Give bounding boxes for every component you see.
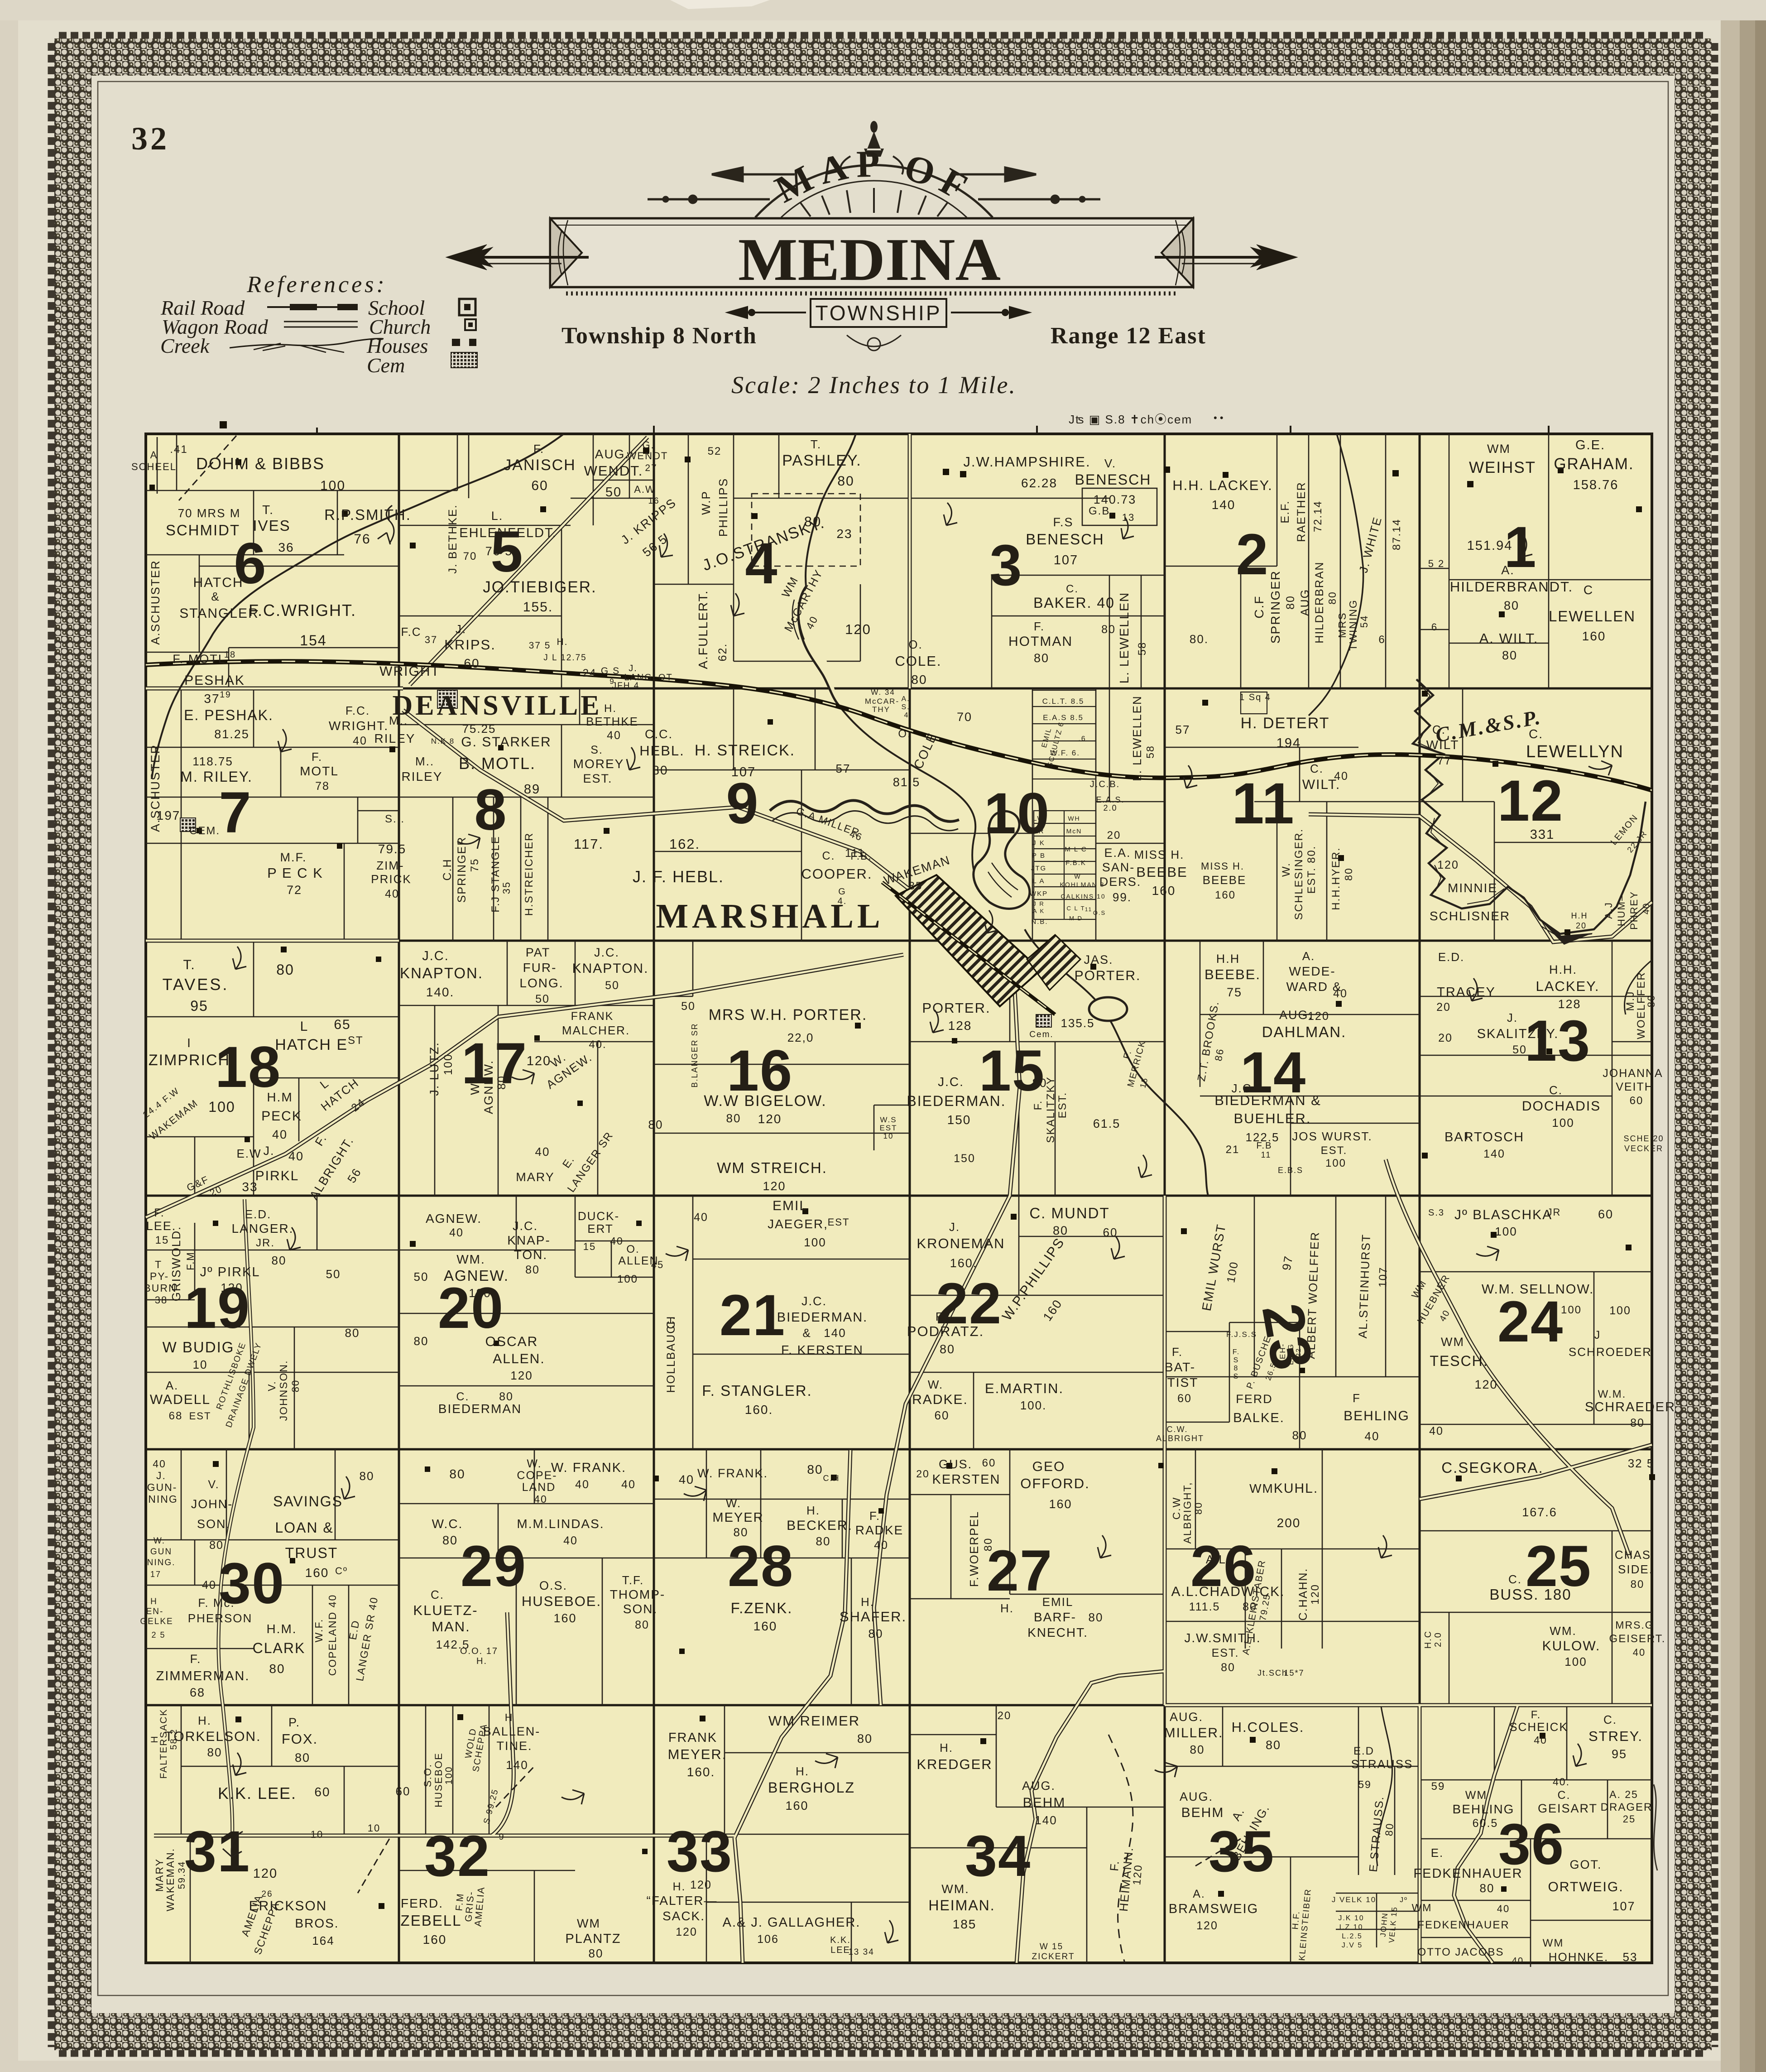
svg-text:J L 12.75: J L 12.75 <box>543 653 586 663</box>
svg-text:40: 40 <box>1497 1903 1510 1914</box>
svg-text:DEANSVILLE: DEANSVILLE <box>392 690 602 721</box>
svg-text:PECK: PECK <box>261 1109 302 1124</box>
svg-text:SCHLESINGER.: SCHLESINGER. <box>1293 828 1305 920</box>
svg-text:F.: F. <box>1107 1860 1122 1872</box>
svg-text:H.: H. <box>1000 1601 1014 1615</box>
svg-text:WKP: WKP <box>1030 890 1048 898</box>
svg-text:L: L <box>300 1019 309 1034</box>
svg-text:20: 20 <box>1436 1001 1451 1014</box>
svg-text:E.F.: E.F. <box>1279 500 1291 523</box>
svg-text:S: S <box>1233 1373 1239 1380</box>
svg-text:F.ZENK.: F.ZENK. <box>731 1600 793 1616</box>
svg-text:H.H.: H.H. <box>1549 963 1577 976</box>
svg-text:FALTERSACK: FALTERSACK <box>158 1709 169 1779</box>
svg-text:HOTMAN: HOTMAN <box>1008 634 1073 649</box>
svg-text:5 2: 5 2 <box>1428 558 1445 569</box>
svg-text:S.: S. <box>590 744 603 756</box>
svg-text:10: 10 <box>368 1822 380 1834</box>
svg-text:50: 50 <box>605 485 622 500</box>
svg-text:120: 120 <box>1131 1864 1145 1885</box>
svg-text:120: 120 <box>1474 1378 1497 1391</box>
svg-text:80: 80 <box>1326 591 1338 605</box>
svg-text:80: 80 <box>1630 1417 1645 1429</box>
svg-text:AGNEW.: AGNEW. <box>426 1211 482 1226</box>
svg-text:TWINING: TWINING <box>1347 599 1359 651</box>
svg-text:KNAPTON.: KNAPTON. <box>400 965 483 981</box>
svg-text:C: C <box>1584 583 1593 597</box>
svg-text:40: 40 <box>385 888 399 900</box>
svg-text:BEHM: BEHM <box>1181 1805 1224 1820</box>
svg-text:J.K 10: J.K 10 <box>1338 1914 1364 1922</box>
svg-text:C.W: C.W <box>1171 1497 1182 1520</box>
svg-text:40: 40 <box>1534 1734 1547 1746</box>
svg-text:4: 4 <box>745 531 778 596</box>
svg-text:FRANK: FRANK <box>668 1731 717 1745</box>
svg-text:36: 36 <box>278 540 294 554</box>
svg-text:STRAUSS: STRAUSS <box>1351 1757 1413 1771</box>
svg-text:J VELK 10: J VELK 10 <box>1332 1895 1376 1904</box>
svg-text:WENDT.: WENDT. <box>584 463 643 479</box>
svg-text:E.D: E.D <box>1353 1745 1374 1757</box>
svg-text:197: 197 <box>157 808 181 822</box>
svg-text:E.A.: E.A. <box>1104 846 1131 860</box>
svg-text:58.2: 58.2 <box>169 1729 179 1750</box>
svg-text:80: 80 <box>1631 1578 1645 1591</box>
svg-text:75: 75 <box>1227 986 1242 999</box>
svg-text:C.SEGKORA.: C.SEGKORA. <box>1441 1459 1543 1476</box>
svg-text:36: 36 <box>1498 1812 1564 1877</box>
svg-text:PHREY: PHREY <box>1628 891 1640 930</box>
svg-text:6: 6 <box>234 531 267 596</box>
svg-text:J.V 5: J.V 5 <box>1342 1942 1363 1949</box>
svg-text:120: 120 <box>676 1926 697 1938</box>
svg-text:25: 25 <box>1526 1534 1592 1599</box>
svg-text:W.C.: W.C. <box>432 1517 463 1531</box>
svg-text:17: 17 <box>150 1570 161 1579</box>
svg-text:EST.: EST. <box>1212 1647 1239 1659</box>
svg-text:160: 160 <box>423 1933 447 1947</box>
svg-text:G.B.: G.B. <box>1089 505 1114 517</box>
svg-text:COOPER.: COOPER. <box>801 866 873 882</box>
svg-text:100: 100 <box>1561 1304 1582 1316</box>
svg-text:H.STREICHER: H.STREICHER <box>523 832 535 916</box>
svg-text:18: 18 <box>215 1035 281 1100</box>
svg-text:10: 10 <box>311 1829 323 1840</box>
svg-text:38: 38 <box>155 1294 168 1306</box>
svg-text:FOX.: FOX. <box>282 1731 318 1747</box>
svg-text:T.F.: T.F. <box>622 1573 644 1587</box>
svg-text:L.2.5: L.2.5 <box>1342 1933 1363 1940</box>
svg-text:HILDERBRAN: HILDERBRAN <box>1313 561 1326 643</box>
svg-text:S.I.: S.I. <box>385 813 405 825</box>
svg-text:WM: WM <box>1441 1335 1464 1349</box>
svg-text:BALKE.: BALKE. <box>1233 1411 1285 1425</box>
svg-text:40: 40 <box>202 1579 216 1591</box>
svg-text:H.: H. <box>806 1504 820 1517</box>
svg-text:RILEY: RILEY <box>374 731 416 745</box>
svg-text:32 5: 32 5 <box>1628 1457 1655 1470</box>
svg-text:60: 60 <box>1177 1392 1192 1405</box>
svg-text:80: 80 <box>1343 867 1354 881</box>
svg-text:T.: T. <box>262 503 274 517</box>
svg-text:Jº: Jº <box>1400 1896 1408 1904</box>
svg-text:80: 80 <box>1292 1428 1307 1442</box>
svg-text:P B: P B <box>1032 852 1046 860</box>
svg-text:80: 80 <box>807 1462 823 1476</box>
svg-text:BALLEN-: BALLEN- <box>483 1725 541 1738</box>
svg-text:60: 60 <box>1598 1207 1613 1221</box>
svg-text:A.W: A.W <box>634 484 656 495</box>
svg-text:19: 19 <box>184 1276 250 1341</box>
svg-text:C.: C. <box>1066 583 1079 595</box>
svg-text:RADKE: RADKE <box>855 1523 903 1537</box>
svg-text:72.14: 72.14 <box>1312 500 1324 532</box>
svg-text:WENDT: WENDT <box>627 450 668 462</box>
svg-text:KRIPS.: KRIPS. <box>444 637 496 653</box>
svg-text:FRANK: FRANK <box>571 1010 614 1023</box>
svg-text:DOHM & BIBBS: DOHM & BIBBS <box>196 454 325 473</box>
svg-text:17: 17 <box>461 1031 528 1096</box>
svg-text:MISS H.: MISS H. <box>1134 848 1185 861</box>
svg-text:VECKER: VECKER <box>1624 1144 1663 1153</box>
svg-text:80: 80 <box>499 1390 513 1403</box>
svg-text:100: 100 <box>804 1236 826 1249</box>
svg-text:JOHNSON.: JOHNSON. <box>278 1360 289 1421</box>
svg-text:160: 160 <box>1049 1497 1072 1511</box>
svg-text:13: 13 <box>1525 1009 1591 1073</box>
svg-text:References:: References: <box>246 272 387 298</box>
svg-text:26: 26 <box>261 1889 273 1899</box>
svg-text:Jº BLASCHKA: Jº BLASCHKA <box>1454 1207 1552 1222</box>
svg-text:TRACEY: TRACEY <box>1437 985 1496 1000</box>
svg-text:20: 20 <box>916 1468 930 1480</box>
svg-text:100: 100 <box>1325 1157 1346 1169</box>
svg-text:ZICKERT: ZICKERT <box>1032 1952 1075 1961</box>
svg-text:40: 40 <box>607 729 621 742</box>
svg-text:KRONEMAN: KRONEMAN <box>917 1236 1005 1251</box>
svg-text:H: H <box>505 1711 513 1723</box>
svg-text:K.K.: K.K. <box>830 1935 851 1945</box>
svg-text:80: 80 <box>648 1118 663 1131</box>
svg-text:SHAFER.: SHAFER. <box>840 1609 907 1625</box>
svg-text:NING.: NING. <box>147 1558 176 1567</box>
svg-text:HEIMAN.: HEIMAN. <box>928 1897 995 1913</box>
svg-text:SACK.: SACK. <box>662 1909 705 1923</box>
svg-text:1 Sq 4: 1 Sq 4 <box>1239 692 1271 702</box>
svg-text:C.: C. <box>456 1390 470 1403</box>
svg-text:F.B: F.B <box>1257 1141 1272 1151</box>
svg-text:27: 27 <box>987 1538 1053 1603</box>
svg-text:76: 76 <box>354 532 370 547</box>
svg-text:C.L.T. 8.5: C.L.T. 8.5 <box>1042 697 1085 706</box>
svg-text:40: 40 <box>1633 1647 1646 1658</box>
svg-text:154: 154 <box>300 632 326 649</box>
svg-text:100: 100 <box>617 1273 638 1285</box>
svg-text:HUM–: HUM– <box>1616 894 1627 926</box>
svg-text:80: 80 <box>857 1732 873 1745</box>
svg-text:40: 40 <box>874 1539 888 1552</box>
svg-text:40: 40 <box>1365 1429 1380 1443</box>
svg-text:24: 24 <box>1497 1289 1564 1354</box>
svg-text:8: 8 <box>1234 1365 1239 1372</box>
svg-text:7: 7 <box>219 780 252 845</box>
svg-text:CALKINS 10: CALKINS 10 <box>1061 893 1105 900</box>
svg-text:118.75: 118.75 <box>192 755 233 768</box>
svg-text:80: 80 <box>209 1539 224 1552</box>
svg-text:2.0: 2.0 <box>1103 803 1117 812</box>
svg-text:J.: J. <box>156 1470 166 1481</box>
svg-text:58: 58 <box>1144 745 1156 759</box>
svg-text:HEBL.: HEBL. <box>639 743 685 759</box>
svg-text:EN-: EN- <box>146 1607 164 1616</box>
svg-text:E. PESHAK.: E. PESHAK. <box>184 707 274 723</box>
svg-text:32: 32 <box>424 1824 490 1889</box>
svg-text:100: 100 <box>1609 1304 1631 1317</box>
svg-text:80.: 80. <box>1190 632 1209 646</box>
svg-text:50: 50 <box>681 1000 696 1013</box>
svg-text:80: 80 <box>1089 1610 1104 1624</box>
svg-text:WM.: WM. <box>1550 1624 1576 1638</box>
svg-text:F: F <box>1353 1391 1361 1405</box>
svg-text:77: 77 <box>1437 755 1452 767</box>
svg-text:L A: L A <box>1032 877 1045 885</box>
svg-text:13 34: 13 34 <box>848 1947 874 1957</box>
svg-text:SCHLISNER: SCHLISNER <box>1430 909 1510 923</box>
svg-text:W.: W. <box>527 1457 542 1470</box>
svg-text:160: 160 <box>305 1566 329 1580</box>
svg-text:107: 107 <box>1377 1266 1390 1288</box>
svg-text:58: 58 <box>1136 642 1148 656</box>
svg-text:WM: WM <box>1249 1481 1274 1495</box>
svg-text:J.: J. <box>263 1144 274 1158</box>
svg-text:59: 59 <box>1431 1780 1445 1793</box>
svg-text:E.D.: E.D. <box>1438 950 1465 964</box>
svg-text:WM: WM <box>1487 442 1511 456</box>
svg-text:120: 120 <box>527 1054 551 1068</box>
svg-text:ZIMMERMAN.: ZIMMERMAN. <box>156 1669 250 1683</box>
svg-text:SCHEICK: SCHEICK <box>1509 1720 1568 1734</box>
svg-text:MRS: MRS <box>1336 612 1348 638</box>
svg-text:162.: 162. <box>669 836 700 852</box>
svg-text:140.: 140. <box>426 985 455 999</box>
svg-text:BERGHOLZ: BERGHOLZ <box>768 1779 855 1796</box>
svg-text:BEHLING: BEHLING <box>1344 1409 1410 1423</box>
svg-text:F.J.S.S: F.J.S.S <box>1226 1330 1257 1339</box>
svg-text:WM REIMER: WM REIMER <box>768 1713 860 1729</box>
svg-text:DUCK-: DUCK- <box>578 1209 619 1223</box>
svg-text:1: 1 <box>1504 515 1537 580</box>
svg-text:ORTWEIG.: ORTWEIG. <box>1548 1880 1623 1894</box>
svg-text:MEYER.: MEYER. <box>668 1746 727 1762</box>
svg-text:BUEHLER.: BUEHLER. <box>1233 1111 1311 1126</box>
svg-text:107: 107 <box>1054 553 1078 567</box>
svg-text:BARF-: BARF- <box>1034 1610 1076 1624</box>
svg-text:J.C.: J.C. <box>801 1294 827 1308</box>
svg-text:JOHANNA: JOHANNA <box>1603 1067 1663 1080</box>
svg-text:WM: WM <box>1465 1789 1487 1802</box>
svg-text:McN: McN <box>1066 827 1082 835</box>
svg-text:40.: 40. <box>589 1038 606 1051</box>
svg-text:61.5: 61.5 <box>1093 1117 1121 1130</box>
svg-text:SCHRAEDER: SCHRAEDER <box>1585 1400 1675 1414</box>
svg-text:R.P.SMITH.: R.P.SMITH. <box>324 506 411 523</box>
svg-text:50: 50 <box>605 979 619 992</box>
svg-text:35: 35 <box>501 881 512 894</box>
svg-text:J R: J R <box>1033 900 1045 907</box>
svg-text:24: 24 <box>583 667 597 679</box>
svg-text:53: 53 <box>1623 1950 1638 1964</box>
svg-text:KNECHT.: KNECHT. <box>1027 1625 1088 1639</box>
svg-text:79.5: 79.5 <box>378 842 407 856</box>
svg-text:MALCHER.: MALCHER. <box>562 1024 630 1037</box>
svg-text:81.25: 81.25 <box>214 727 250 741</box>
svg-text:H.H: H.H <box>1216 952 1240 966</box>
svg-text:C.: C. <box>1310 762 1324 775</box>
svg-text:MAN.: MAN. <box>432 1619 470 1635</box>
svg-text:80: 80 <box>360 1469 374 1483</box>
svg-text:40: 40 <box>679 1473 694 1486</box>
svg-text:M.J: M.J <box>1624 991 1636 1011</box>
svg-text:35: 35 <box>1209 1819 1275 1884</box>
svg-text:&: & <box>802 1326 811 1340</box>
svg-text:MRS.G: MRS.G <box>1615 1619 1654 1631</box>
svg-text:F.: F. <box>312 750 322 764</box>
svg-text:&: & <box>211 590 220 603</box>
svg-text:80: 80 <box>272 1254 287 1267</box>
svg-text:K.K. LEE.: K.K. LEE. <box>218 1784 297 1803</box>
svg-text:13: 13 <box>1122 512 1135 523</box>
svg-text:C.H: C.H <box>441 858 454 880</box>
svg-text:A.SCHUSTER: A.SCHUSTER <box>149 560 162 645</box>
svg-text:33: 33 <box>667 1819 733 1884</box>
svg-text:F.J STANGLE: F.J STANGLE <box>489 836 502 913</box>
svg-text:72: 72 <box>287 883 302 897</box>
svg-text:EST: EST <box>828 1216 850 1228</box>
svg-text:J.C.: J.C. <box>938 1075 964 1089</box>
svg-text:KULOW.: KULOW. <box>1542 1639 1601 1654</box>
svg-text:160.: 160. <box>745 1403 773 1417</box>
svg-text:MOREY: MOREY <box>573 757 624 771</box>
svg-text:Range 12 East: Range 12 East <box>1051 323 1206 349</box>
svg-text:15*7: 15*7 <box>1284 1668 1304 1678</box>
svg-text:35: 35 <box>909 880 923 892</box>
svg-text:WEIHST: WEIHST <box>1469 459 1536 476</box>
svg-text:60.5: 60.5 <box>1473 1817 1498 1830</box>
svg-text:BENESCH: BENESCH <box>1075 471 1152 488</box>
svg-text:50: 50 <box>535 993 550 1005</box>
svg-text:45: 45 <box>651 1259 664 1270</box>
svg-text:C L T: C L T <box>1066 905 1085 912</box>
svg-text:120: 120 <box>1308 1010 1329 1023</box>
svg-text:80: 80 <box>837 474 854 489</box>
svg-text:BEHM: BEHM <box>1023 1795 1066 1810</box>
svg-text:W.P: W.P <box>699 490 713 515</box>
svg-text:W. 34: W. 34 <box>871 688 895 697</box>
svg-text:2.0: 2.0 <box>1433 1632 1443 1647</box>
svg-text:BARTOSCH: BARTOSCH <box>1444 1130 1524 1144</box>
svg-text:J.W.HAMPSHIRE.: J.W.HAMPSHIRE. <box>963 454 1090 470</box>
svg-text:M L C: M L C <box>1065 846 1087 853</box>
svg-text:F.: F. <box>1531 1709 1541 1721</box>
svg-text:194: 194 <box>1277 736 1301 750</box>
svg-text:PASHLEY.: PASHLEY. <box>782 452 861 469</box>
svg-text:VEITH: VEITH <box>1616 1081 1654 1093</box>
svg-text:40: 40 <box>1429 1425 1444 1437</box>
svg-text:80: 80 <box>1101 623 1116 636</box>
svg-text:EST. 80.: EST. 80. <box>1305 846 1318 894</box>
svg-text:80: 80 <box>1193 1502 1204 1514</box>
svg-text:CLARK: CLARK <box>253 1640 306 1656</box>
svg-text:86: 86 <box>1213 1048 1226 1062</box>
svg-text:80: 80 <box>652 763 668 777</box>
svg-text:106: 106 <box>757 1933 779 1946</box>
svg-text:V.: V. <box>1104 457 1116 470</box>
svg-text:I.Z 10: I.Z 10 <box>1339 1923 1363 1931</box>
svg-text:LAND: LAND <box>522 1481 556 1494</box>
svg-text:BECKER.: BECKER. <box>787 1518 853 1533</box>
svg-text:87.14: 87.14 <box>1391 519 1403 550</box>
svg-text:H.H: H.H <box>1571 911 1588 920</box>
svg-text:O.O. 17: O.O. 17 <box>460 1646 498 1656</box>
svg-text:SCHROEDER: SCHROEDER <box>1569 1345 1652 1359</box>
svg-text:P.: P. <box>288 1716 300 1729</box>
svg-text:F.C.WRIGHT.: F.C.WRIGHT. <box>249 601 356 620</box>
svg-text:WEDE-: WEDE- <box>1289 964 1335 978</box>
svg-text:SON.: SON. <box>197 1517 230 1531</box>
svg-text:BIEDERMAN.: BIEDERMAN. <box>777 1310 868 1325</box>
svg-text:F.: F. <box>190 1652 201 1666</box>
svg-text:BEEBE: BEEBE <box>1203 873 1247 887</box>
svg-text:80: 80 <box>525 1264 540 1276</box>
svg-text:M..: M.. <box>415 755 434 768</box>
svg-text:80: 80 <box>911 673 927 687</box>
svg-text:PY-: PY- <box>150 1270 169 1282</box>
svg-text:H.: H. <box>940 1741 953 1755</box>
svg-text:26: 26 <box>1190 1534 1257 1599</box>
svg-text:160: 160 <box>1215 889 1236 901</box>
svg-text:N.K 8: N.K 8 <box>431 737 455 745</box>
svg-text:J. LUTZ.: J. LUTZ. <box>427 1042 441 1096</box>
svg-text:78: 78 <box>315 780 330 793</box>
svg-text:COLE.: COLE. <box>895 653 941 669</box>
svg-text:OFFORD.: OFFORD. <box>1020 1476 1090 1491</box>
svg-text:128: 128 <box>948 1019 972 1033</box>
svg-text:TAVES.: TAVES. <box>163 975 229 994</box>
svg-text:50: 50 <box>326 1267 341 1281</box>
svg-text:200: 200 <box>1277 1516 1301 1530</box>
svg-text:TESCH.: TESCH. <box>1430 1353 1488 1369</box>
svg-text:L. LEWELLEN: L. LEWELLEN <box>1117 592 1131 684</box>
svg-text:40: 40 <box>288 1149 304 1163</box>
svg-text:81.5: 81.5 <box>893 775 921 789</box>
svg-text:80: 80 <box>1480 1881 1495 1895</box>
svg-text:A.: A. <box>1193 1888 1205 1900</box>
svg-text:80: 80 <box>589 1947 604 1960</box>
svg-text:RAETHER: RAETHER <box>1295 481 1308 542</box>
svg-text:15: 15 <box>155 1234 169 1246</box>
svg-text:SIDE.: SIDE. <box>1618 1562 1653 1576</box>
svg-text:Cem.: Cem. <box>1029 1030 1053 1039</box>
svg-text:EST.: EST. <box>583 772 612 785</box>
svg-text:160.: 160. <box>950 1256 978 1270</box>
svg-text:H. STREICK.: H. STREICK. <box>695 742 795 759</box>
svg-text:120: 120 <box>1196 1919 1218 1932</box>
svg-text:J. F. HEBL.: J. F. HEBL. <box>633 867 724 886</box>
svg-text:A.J: A.J <box>1603 902 1614 919</box>
svg-text:O.: O. <box>626 1243 639 1255</box>
svg-text:KOHLMAN 8: KOHLMAN 8 <box>1060 881 1105 888</box>
svg-text:40: 40 <box>621 1478 636 1491</box>
